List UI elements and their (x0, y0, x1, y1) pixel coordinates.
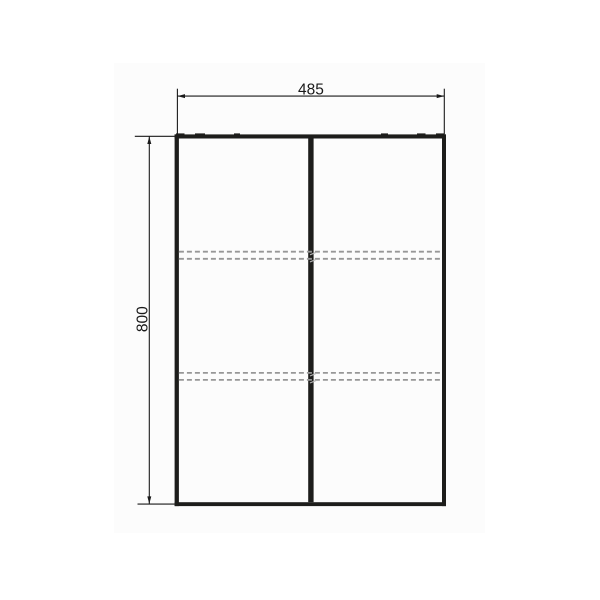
svg-text:485: 485 (298, 81, 324, 98)
svg-text:800: 800 (134, 306, 151, 332)
